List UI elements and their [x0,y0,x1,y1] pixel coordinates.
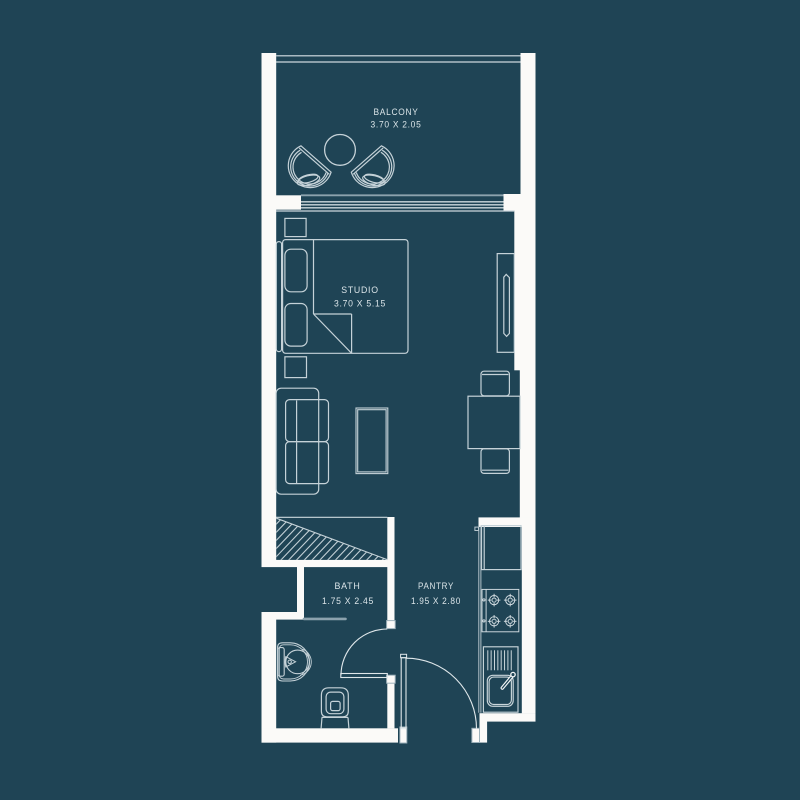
svg-text:1.75 X 2.45: 1.75 X 2.45 [322,596,374,607]
svg-text:BALCONY: BALCONY [374,107,419,118]
svg-text:1.95 X 2.80: 1.95 X 2.80 [411,596,461,607]
svg-text:STUDIO: STUDIO [341,285,379,296]
svg-text:BATH: BATH [335,581,361,592]
svg-text:PANTRY: PANTRY [418,581,454,592]
svg-text:3.70 X 5.15: 3.70 X 5.15 [334,298,386,309]
svg-text:3.70 X 2.05: 3.70 X 2.05 [371,120,422,131]
